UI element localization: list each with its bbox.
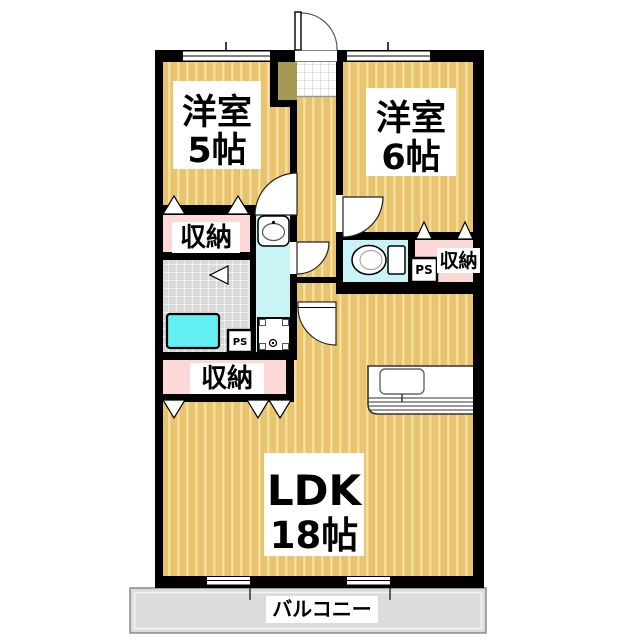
entrance-door-icon xyxy=(295,12,337,50)
floor-plan: PS PS 洋室 5帖 洋室 6帖 収納 収納 収納 LDK xyxy=(0,0,640,640)
ldk-label: LDK 18帖 xyxy=(264,453,364,557)
ldk-name: LDK xyxy=(267,466,363,515)
bedroom-right-name: 洋室 xyxy=(376,98,446,139)
entrance-opening xyxy=(295,51,337,62)
wall-entrance-left xyxy=(270,50,278,107)
closet-label: 収納 xyxy=(439,249,477,272)
wall-washroom-right-lower xyxy=(290,274,297,360)
bedroom-right-size: 6帖 xyxy=(381,138,440,178)
hall-floor-strip xyxy=(297,283,336,294)
wall-corridor-left-upper xyxy=(290,104,297,173)
window-bottom-right xyxy=(347,577,390,585)
wall-outer-bottom xyxy=(155,576,484,588)
closet-bedroom-right-label: 収納 xyxy=(437,248,480,273)
bedroom-left-name: 洋室 xyxy=(182,92,252,133)
closet-ldk-label: 収納 xyxy=(190,363,264,394)
toilet-icon xyxy=(352,246,405,275)
bedroom-left-size: 5帖 xyxy=(187,131,246,171)
wall-corridor-right xyxy=(336,62,343,195)
shoe-cabinet-icon xyxy=(278,57,297,100)
washbasin-icon xyxy=(258,216,289,246)
wall-toilet-row-bottom xyxy=(336,282,484,294)
bathtub-icon xyxy=(167,314,219,348)
pipe-space-bath-label: PS xyxy=(233,337,248,348)
bedroom-left-label: 洋室 5帖 xyxy=(173,81,261,171)
wall-outer-left xyxy=(155,50,163,588)
balcony-label: バルコニー xyxy=(266,596,378,623)
balcony-name: バルコニー xyxy=(272,597,372,621)
floor-plan-page: PS PS 洋室 5帖 洋室 6帖 収納 収納 収納 LDK xyxy=(0,0,640,640)
window-bottom-left xyxy=(207,577,250,585)
wall-closet1-bottom xyxy=(155,252,256,260)
kitchen-counter-icon xyxy=(368,366,473,414)
pipe-space-toilet-label: PS xyxy=(415,263,432,277)
wall-hall-divider xyxy=(297,277,336,283)
wall-outer-right xyxy=(473,50,484,588)
closet-label: 収納 xyxy=(201,363,253,394)
bedroom-right-label: 洋室 6帖 xyxy=(366,88,456,178)
closet-label: 収納 xyxy=(180,222,232,253)
washing-machine-icon xyxy=(258,318,290,351)
closet-bedroom-left-label: 収納 xyxy=(172,222,240,253)
ldk-size: 18帖 xyxy=(270,514,359,557)
entrance-tiles xyxy=(297,62,336,96)
wall-wetarea-bottom xyxy=(155,352,297,360)
wall-toilet-left xyxy=(336,240,343,282)
